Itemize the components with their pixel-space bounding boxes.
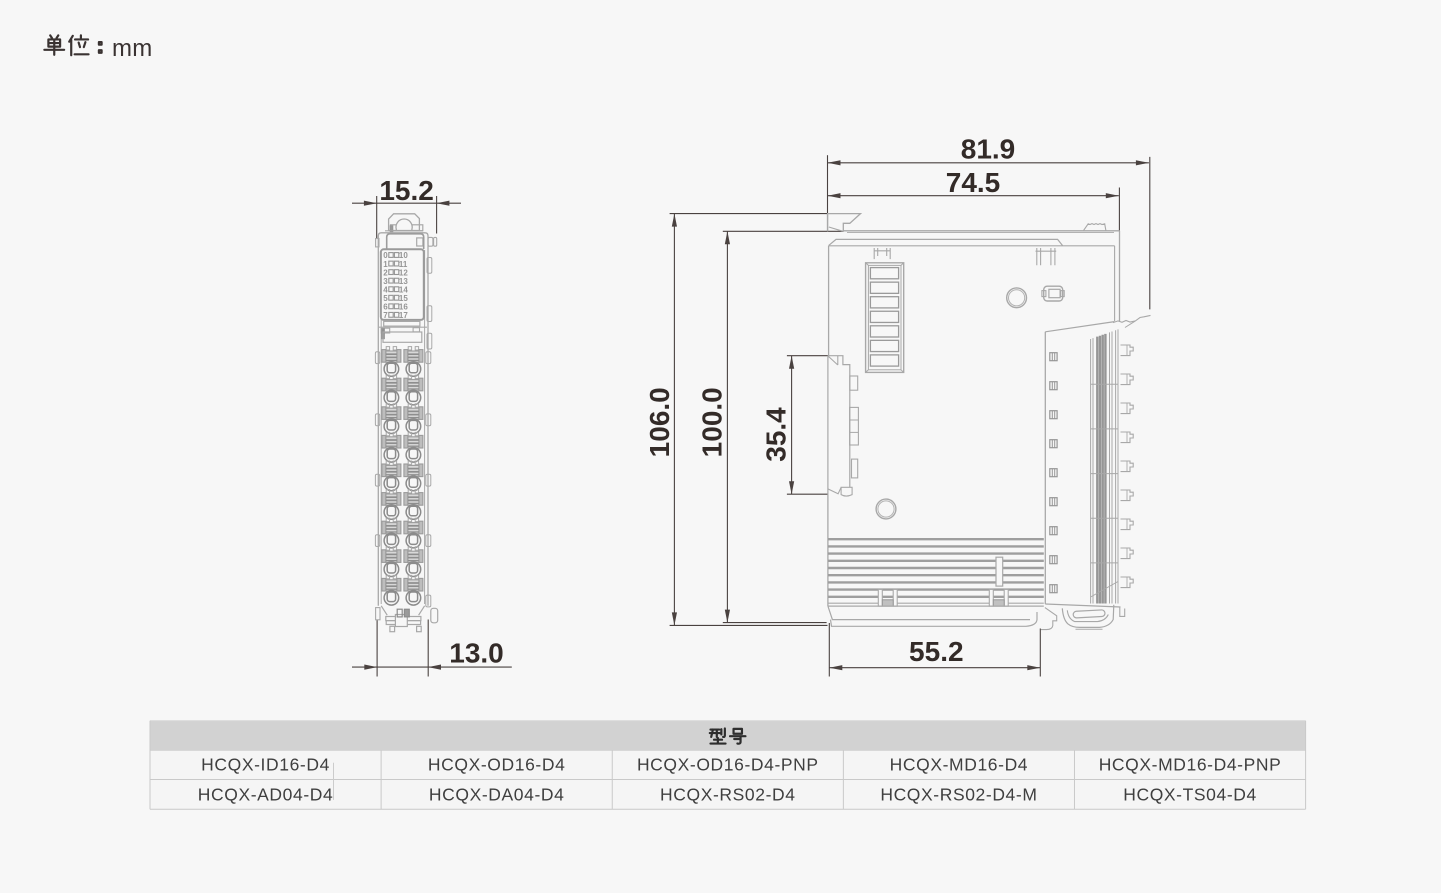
svg-text:HCQX-RS02-D4-M: HCQX-RS02-D4-M <box>880 784 1037 804</box>
svg-text:13.0: 13.0 <box>449 638 504 669</box>
svg-text:mm: mm <box>112 35 153 62</box>
svg-text:81.9: 81.9 <box>961 134 1016 165</box>
svg-text:HCQX-AD04-D4: HCQX-AD04-D4 <box>198 784 334 804</box>
svg-text:HCQX-MD16-D4-PNP: HCQX-MD16-D4-PNP <box>1099 755 1282 775</box>
svg-text:HCQX-OD16-D4: HCQX-OD16-D4 <box>428 755 566 775</box>
svg-text:HCQX-TS04-D4: HCQX-TS04-D4 <box>1123 784 1257 804</box>
svg-text:HCQX-MD16-D4: HCQX-MD16-D4 <box>890 755 1028 775</box>
svg-text:106.0: 106.0 <box>644 387 675 457</box>
svg-text:7: 7 <box>383 311 388 320</box>
svg-text:55.2: 55.2 <box>909 636 964 667</box>
svg-text:100.0: 100.0 <box>697 387 728 457</box>
svg-text:15.2: 15.2 <box>379 175 434 206</box>
svg-text:HCQX-DA04-D4: HCQX-DA04-D4 <box>429 784 565 804</box>
svg-text:HCQX-OD16-D4-PNP: HCQX-OD16-D4-PNP <box>637 755 819 775</box>
svg-text:74.5: 74.5 <box>946 167 1001 198</box>
svg-text:35.4: 35.4 <box>761 407 792 462</box>
svg-text:17: 17 <box>399 311 408 320</box>
svg-text:HCQX-ID16-D4: HCQX-ID16-D4 <box>201 755 330 775</box>
svg-text:HCQX-RS02-D4: HCQX-RS02-D4 <box>660 784 796 804</box>
